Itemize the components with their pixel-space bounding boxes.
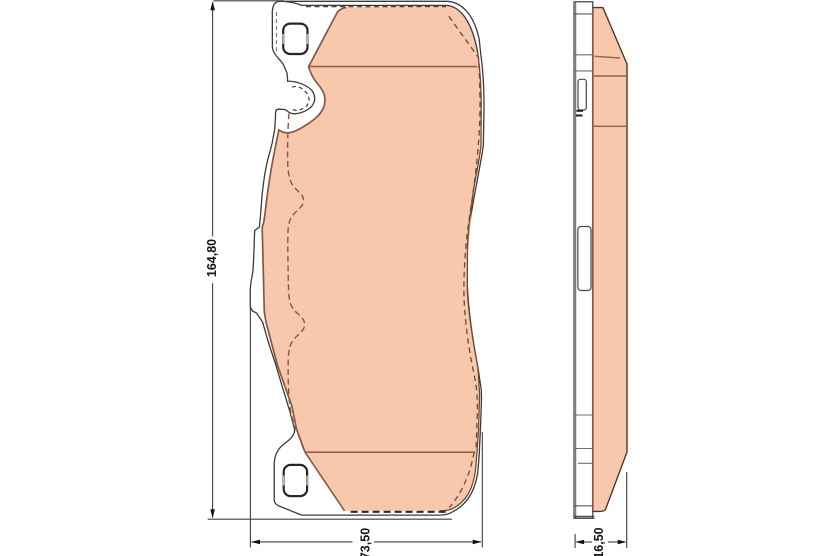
svg-text:73,50: 73,50 [358, 528, 372, 556]
svg-text:16,50: 16,50 [592, 527, 606, 556]
svg-text:164,80: 164,80 [205, 239, 219, 277]
